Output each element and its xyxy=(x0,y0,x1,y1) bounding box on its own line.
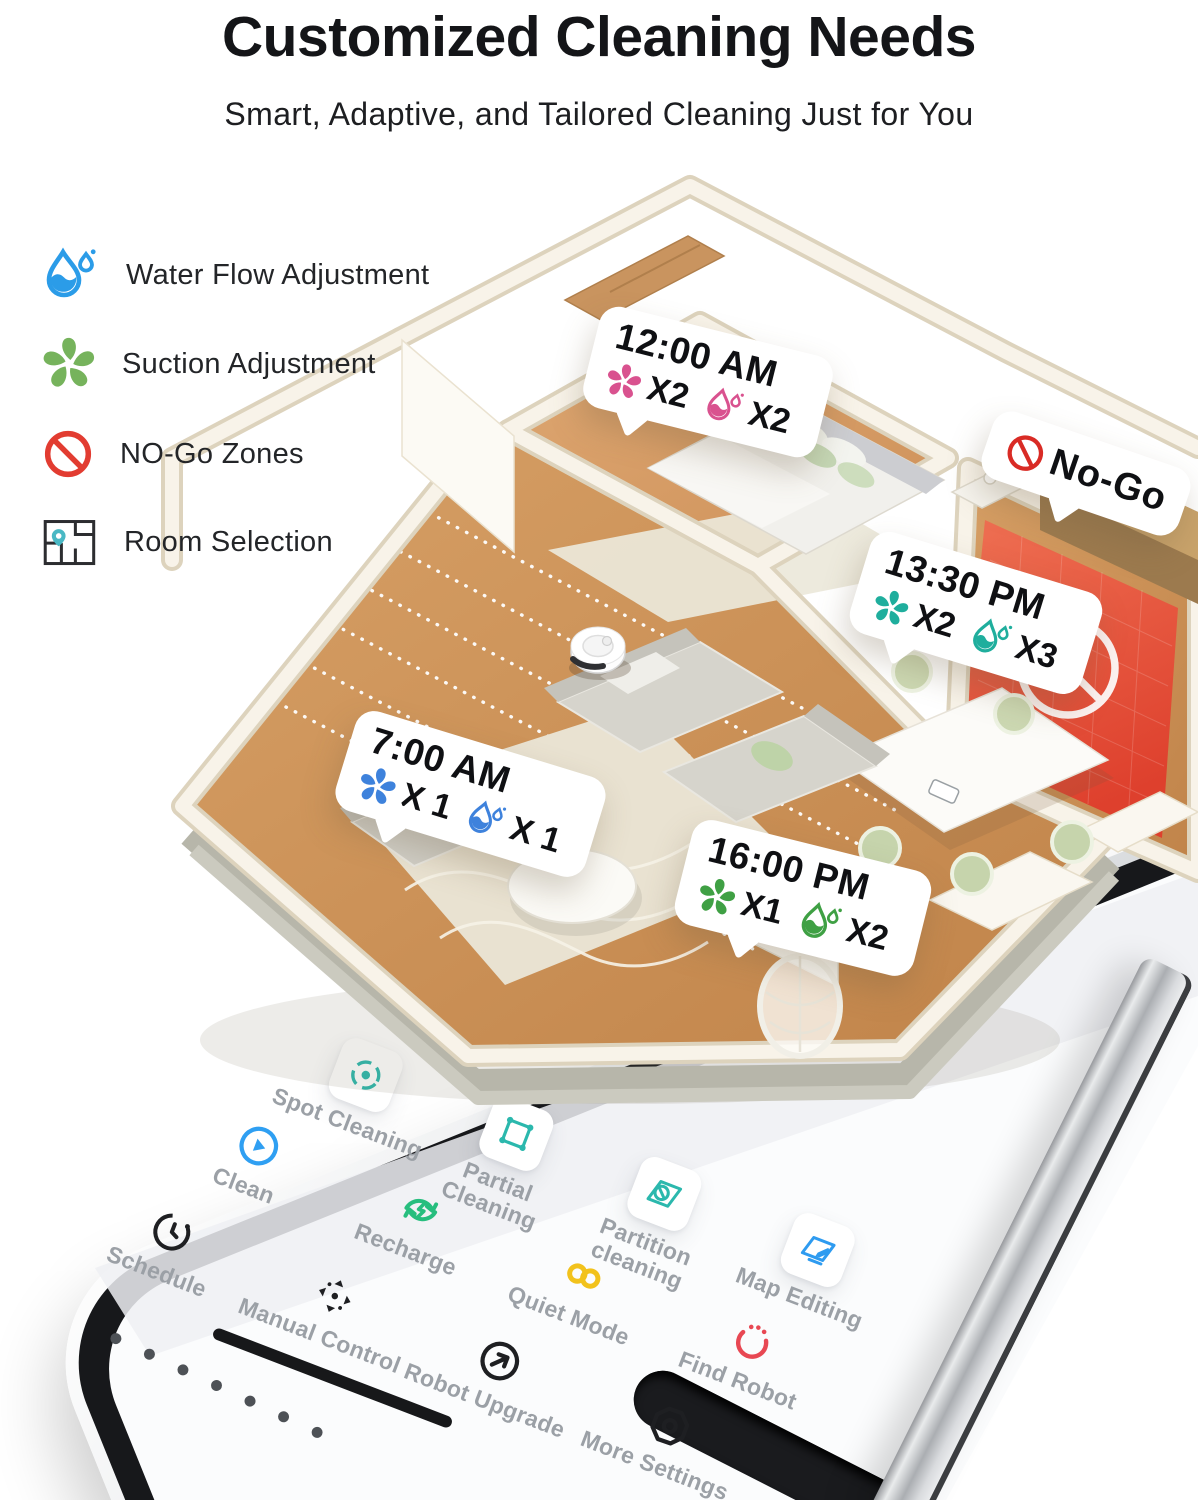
legend-item-room-selection: Room Selection xyxy=(42,516,333,568)
no-entry-icon xyxy=(1000,427,1051,478)
callout-hall: 16:00 PM X1 X2 xyxy=(671,816,936,980)
sofa-top xyxy=(544,628,782,752)
legend-item-water-flow: Water Flow Adjustment xyxy=(40,245,429,305)
legend-label: NO-Go Zones xyxy=(120,438,304,471)
wardrobe xyxy=(565,236,724,320)
partition-cleaning-icon xyxy=(640,1169,689,1218)
floorplan-pin-icon xyxy=(42,516,98,568)
water-drop-icon xyxy=(699,382,747,430)
partial-cleaning-icon xyxy=(492,1109,541,1158)
clean-icon xyxy=(229,1116,288,1175)
fan-icon xyxy=(42,337,96,391)
legend-label: Room Selection xyxy=(124,526,333,559)
tall-wall-face xyxy=(402,340,514,552)
map-editing-icon xyxy=(793,1226,842,1275)
robot-vacuum xyxy=(569,627,631,680)
page-title: Customized Cleaning Needs xyxy=(0,4,1198,70)
water-drop-icon xyxy=(40,245,100,305)
water-count: X3 xyxy=(1011,628,1062,677)
water-count: X2 xyxy=(745,394,795,442)
app-spot-cleaning[interactable]: Spot Cleaning xyxy=(287,1024,434,1157)
page: Customized Cleaning Needs Smart, Adaptiv… xyxy=(0,0,1198,1500)
fan-icon xyxy=(694,874,740,920)
callout-no-go: No-Go xyxy=(976,406,1196,541)
callout-bedroom: 12:00 AM X2 X2 xyxy=(579,302,837,461)
page-subtitle: Smart, Adaptive, and Tailored Cleaning J… xyxy=(0,96,1198,133)
water-count: X2 xyxy=(843,911,893,959)
callout-dining: 13:30 PM X2 X3 xyxy=(845,527,1108,699)
schedule-icon xyxy=(142,1202,201,1261)
spot-cleaning-icon xyxy=(341,1051,390,1100)
no-entry-icon xyxy=(42,428,94,480)
legend-item-suction: Suction Adjustment xyxy=(42,337,376,391)
legend-label: Suction Adjustment xyxy=(122,348,376,381)
suction-count: X2 xyxy=(909,596,960,645)
legend-item-no-go: NO-Go Zones xyxy=(42,428,304,480)
callout-living: 7:00 AM X 1 X 1 xyxy=(331,706,611,882)
water-drop-icon xyxy=(792,896,845,949)
cropped-screen-text: a xyxy=(1154,767,1174,794)
suction-count: X2 xyxy=(643,369,693,417)
remote-control xyxy=(928,779,960,804)
legend-label: Water Flow Adjustment xyxy=(126,259,429,292)
sofa-right xyxy=(664,704,890,822)
